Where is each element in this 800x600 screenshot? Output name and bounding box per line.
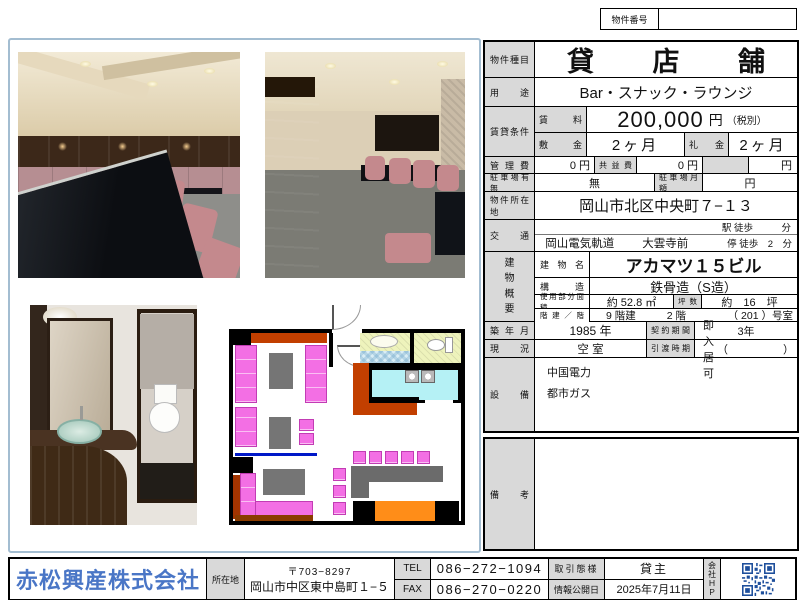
parking-value: 無	[535, 174, 655, 191]
floors-building: 9 階建	[590, 308, 652, 323]
area-row: 使用部分面積 約 52.8 ㎡ 坪数 約 16 坪	[535, 295, 797, 309]
built-label: 築年月	[485, 322, 535, 339]
plan-wall-block	[353, 501, 375, 521]
plan-wall-segment	[329, 333, 333, 367]
rent-value: 200,000 円 （税別）	[587, 107, 797, 132]
photo3-faucet	[80, 406, 83, 420]
handover-label: 引渡時期	[647, 340, 695, 357]
key-money-label: 礼金	[685, 133, 729, 156]
qr-cell	[721, 559, 795, 599]
photo3-dark-floor	[140, 463, 193, 498]
common-fee-label: 共益費	[595, 157, 637, 173]
parking-fee-label: 駐車場月額	[655, 174, 703, 191]
deposit-value: 2ヶ月	[587, 133, 685, 156]
publish-date-value: 2025年7月11日	[605, 580, 703, 600]
phone-value-col: 086−272−1094 086−270−0220	[431, 559, 549, 599]
company-name: 赤松興産株式会社	[10, 559, 207, 599]
address-label: 物件所在地	[485, 192, 535, 219]
plan-sink	[405, 370, 419, 383]
floor-plan	[229, 305, 465, 525]
access-line: 岡山電気軌道	[535, 235, 625, 251]
key-money-value: 2ヶ月	[729, 133, 797, 156]
plan-toilet	[427, 339, 445, 351]
deal-label-col: 取引態様 情報公開日	[549, 559, 605, 599]
equipment-line: 都市ガス	[547, 384, 797, 405]
deposit-label: 敷金	[535, 133, 587, 156]
parking-label: 駐車場有無	[485, 174, 535, 191]
plan-chair	[299, 433, 314, 445]
property-sheet: 物件番号	[0, 0, 800, 600]
photo-restroom	[30, 305, 197, 525]
plan-wall-block	[233, 457, 253, 473]
access-station: 大雲寺前	[625, 235, 706, 251]
plan-partition-line	[235, 453, 317, 456]
publish-date-label: 情報公開日	[549, 580, 604, 600]
use-value: Bar・スナック・ラウンジ	[535, 78, 797, 106]
built-value: 1985 年	[535, 322, 647, 339]
row-property-type: 物件種目 貸店舗	[485, 42, 797, 78]
contract-label: 契約期間	[647, 322, 695, 339]
plan-stool	[333, 485, 346, 498]
building-name-label: 建物名	[535, 252, 590, 277]
equipment-label: 設備	[485, 358, 535, 431]
access-label: 交通	[485, 220, 535, 251]
use-label: 用途	[485, 78, 535, 106]
rent-conditions-label: 賃貸条件	[485, 107, 535, 156]
remarks-value	[535, 439, 797, 549]
plan-stool	[385, 451, 398, 464]
row-built: 築年月 1985 年 契約期間 3年	[485, 322, 797, 340]
photo2-chair	[389, 158, 411, 184]
plan-sofa	[305, 345, 327, 403]
plan-counter-rust	[353, 403, 417, 415]
row-access: 交通 駅 徒歩 分 岡山電気軌道 大雲寺前 停 徒歩 2 分	[485, 220, 797, 252]
building-name-value: アカマツ１５ビル	[590, 252, 797, 277]
plan-table	[263, 469, 305, 495]
structure-value: 鉄骨造（S造）	[590, 278, 797, 294]
plan-stool	[369, 451, 382, 464]
property-type-value: 貸店舗	[535, 42, 797, 77]
plan-bar-counter	[351, 466, 369, 498]
footer-bar: 赤松興産株式会社 所在地 〒703−8297 岡山市中区東中島町１−５ TEL …	[8, 557, 797, 600]
floors-label: 階建／階	[535, 309, 590, 322]
building-overview-label: 建 物 概 要	[485, 252, 535, 321]
deposit-row: 敷金 2ヶ月 礼金 2ヶ月	[535, 133, 797, 156]
plan-stool	[417, 451, 430, 464]
office-address: 岡山市中区東中島町１−５	[250, 578, 389, 595]
office-address-label: 所在地	[207, 559, 245, 599]
fax-value: 086−270−0220	[431, 580, 548, 600]
deal-value-col: 貸主 2025年7月11日	[605, 559, 704, 599]
fax-label: FAX	[395, 580, 430, 600]
building-name-row: 建物名 アカマツ１５ビル	[535, 252, 797, 278]
photo2-cabinet-top	[265, 77, 315, 97]
photo3-glass-sink	[57, 419, 102, 443]
remarks-label: 備考	[485, 439, 535, 549]
floors-unit: 2 階	[652, 308, 701, 323]
photo3-toilet-bowl	[149, 402, 181, 433]
photo3-toilet-tank	[154, 384, 177, 404]
qr-code	[742, 563, 775, 596]
plan-washbasin	[370, 335, 398, 348]
photo3-door-wall	[140, 314, 193, 389]
parking-fee-unit: 円	[703, 174, 797, 191]
phone-label-col: TEL FAX	[395, 559, 431, 599]
rent-tax-note: （税別）	[727, 112, 767, 127]
row-parking: 駐車場有無 無 駐車場月額 円	[485, 174, 797, 192]
plan-chair	[299, 419, 314, 431]
handover-paren: （ ）	[717, 341, 797, 357]
photo2-chair	[365, 156, 385, 180]
plan-wall-block	[435, 501, 459, 521]
photo2-counter-corner	[435, 192, 465, 255]
photo2-chair	[413, 160, 435, 188]
status-value: 空 室	[535, 340, 647, 357]
property-type-label: 物件種目	[485, 42, 535, 77]
access-line1: 駅 徒歩 分	[535, 220, 797, 235]
equipment-line: 中国電力	[547, 363, 797, 384]
row-use: 用途 Bar・スナック・ラウンジ	[485, 78, 797, 107]
downlight	[437, 61, 448, 67]
plan-entrance-mat	[375, 501, 435, 521]
deal-type-value: 貸主	[605, 559, 703, 580]
row-equipment: 設備 中国電力 都市ガス	[485, 358, 797, 431]
plan-table	[269, 417, 291, 449]
address-value: 岡山市北区中央町７−１３	[535, 192, 797, 219]
plan-sofa	[240, 473, 256, 517]
office-address-cell: 〒703−8297 岡山市中区東中島町１−５	[245, 559, 395, 599]
plan-toilet-tank	[445, 337, 453, 353]
photo-lounge-1	[18, 52, 240, 278]
plan-stool	[333, 468, 346, 481]
row-address: 物件所在地 岡山市北区中央町７−１３	[485, 192, 797, 220]
row-status: 現況 空 室 引渡時期 即入居可 （ ）	[485, 340, 797, 358]
tsubo-label: 坪数	[674, 295, 702, 308]
photo3-vanity-body	[30, 446, 127, 525]
plan-sofa	[235, 407, 257, 447]
status-label: 現況	[485, 340, 535, 357]
plan-sink	[421, 370, 435, 383]
tel-label: TEL	[395, 559, 430, 580]
area-label: 使用部分面積	[535, 295, 590, 308]
area-value: 約 52.8 ㎡	[590, 295, 674, 308]
remarks-box: 備考	[483, 437, 799, 551]
plan-table	[269, 353, 293, 389]
property-number-value	[659, 9, 796, 29]
deal-type-label: 取引態様	[549, 559, 604, 580]
photo2-cabinet	[265, 82, 319, 275]
row-building: 建 物 概 要 建物名 アカマツ１５ビル 構造 鉄骨造（S造） 使用部分面積 約…	[485, 252, 797, 322]
plan-entrance-door-arc	[332, 305, 361, 330]
access-walk: 停 徒歩 2 分	[706, 236, 797, 250]
access-line2: 岡山電気軌道 大雲寺前 停 徒歩 2 分	[535, 235, 797, 251]
plan-counter-rust	[233, 475, 240, 519]
photo2-chair	[437, 165, 459, 191]
spec-table: 物件種目 貸店舗 用途 Bar・スナック・ラウンジ 賃貸条件 賃料 200,00…	[483, 40, 799, 433]
extra-fee-label	[703, 157, 749, 173]
management-fee-value: 0 円	[535, 157, 595, 173]
photo2-ottoman	[385, 233, 431, 263]
tsubo-value: 約 16 坪	[702, 295, 797, 308]
photo-panel	[8, 38, 481, 553]
photo2-back-bar	[375, 115, 439, 151]
plan-stool	[353, 451, 366, 464]
tel-value: 086−272−1094	[431, 559, 548, 580]
plan-counter-rust	[251, 333, 327, 343]
plan-wall-block	[233, 333, 251, 345]
row-rent-conditions: 賃貸条件 賃料 200,000 円 （税別） 敷金 2ヶ月 礼金 2ヶ月	[485, 107, 797, 157]
photo-lounge-2	[265, 52, 465, 278]
rent-label: 賃料	[535, 107, 587, 132]
extra-fee-unit: 円	[749, 157, 797, 173]
floors-row: 階建／階 9 階建 2 階 （ 201 ）号室	[535, 309, 797, 322]
property-number-label: 物件番号	[601, 9, 659, 29]
plan-stool	[333, 502, 346, 515]
postal-code: 〒703−8297	[288, 563, 352, 578]
plan-door-gap	[332, 329, 362, 334]
rent-row: 賃料 200,000 円 （税別）	[535, 107, 797, 133]
company-hp-label: 会 社 Ｈ Ｐ	[704, 559, 721, 599]
plan-sofa	[235, 345, 257, 403]
property-number-box: 物件番号	[600, 8, 797, 30]
plan-counter-brown	[235, 515, 313, 521]
plan-pass-gap	[425, 400, 453, 404]
plan-stool	[401, 451, 414, 464]
